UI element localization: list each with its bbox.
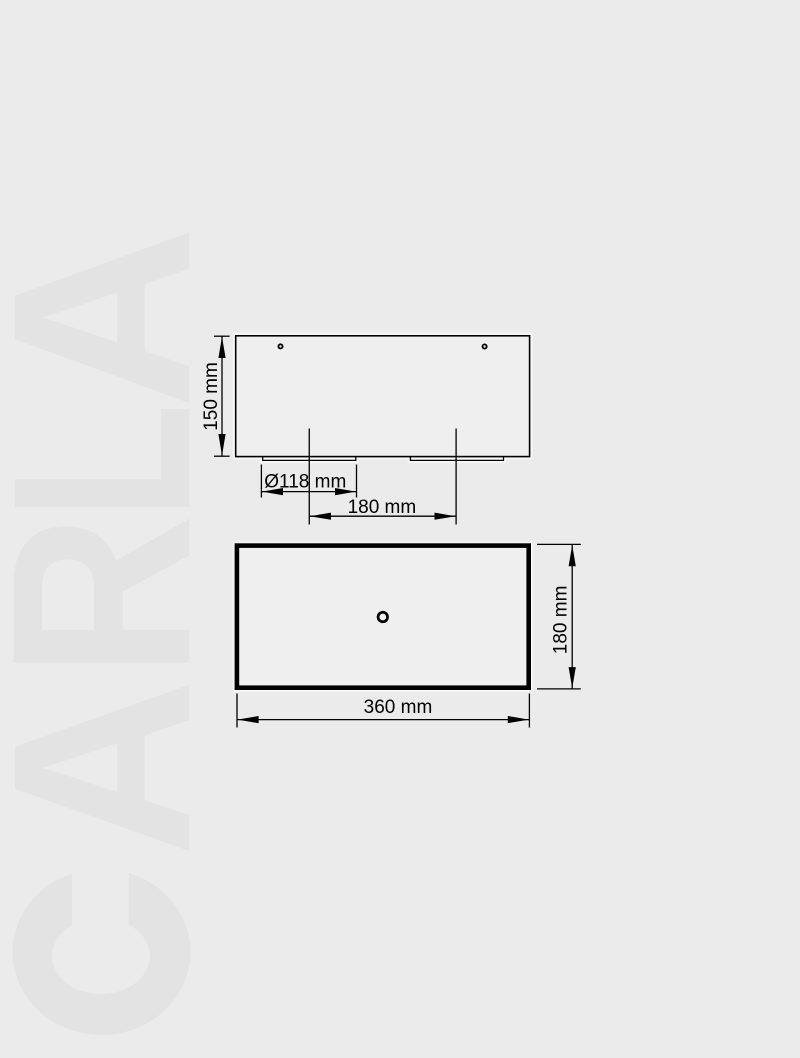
svg-text:Ø118 mm: Ø118 mm [264, 471, 346, 492]
svg-text:R: R [0, 514, 244, 678]
svg-text:180 mm: 180 mm [348, 497, 417, 518]
svg-text:150 mm: 150 mm [201, 362, 222, 431]
svg-text:A: A [0, 678, 244, 857]
svg-text:360 mm: 360 mm [364, 697, 433, 718]
svg-text:180 mm: 180 mm [551, 586, 572, 655]
